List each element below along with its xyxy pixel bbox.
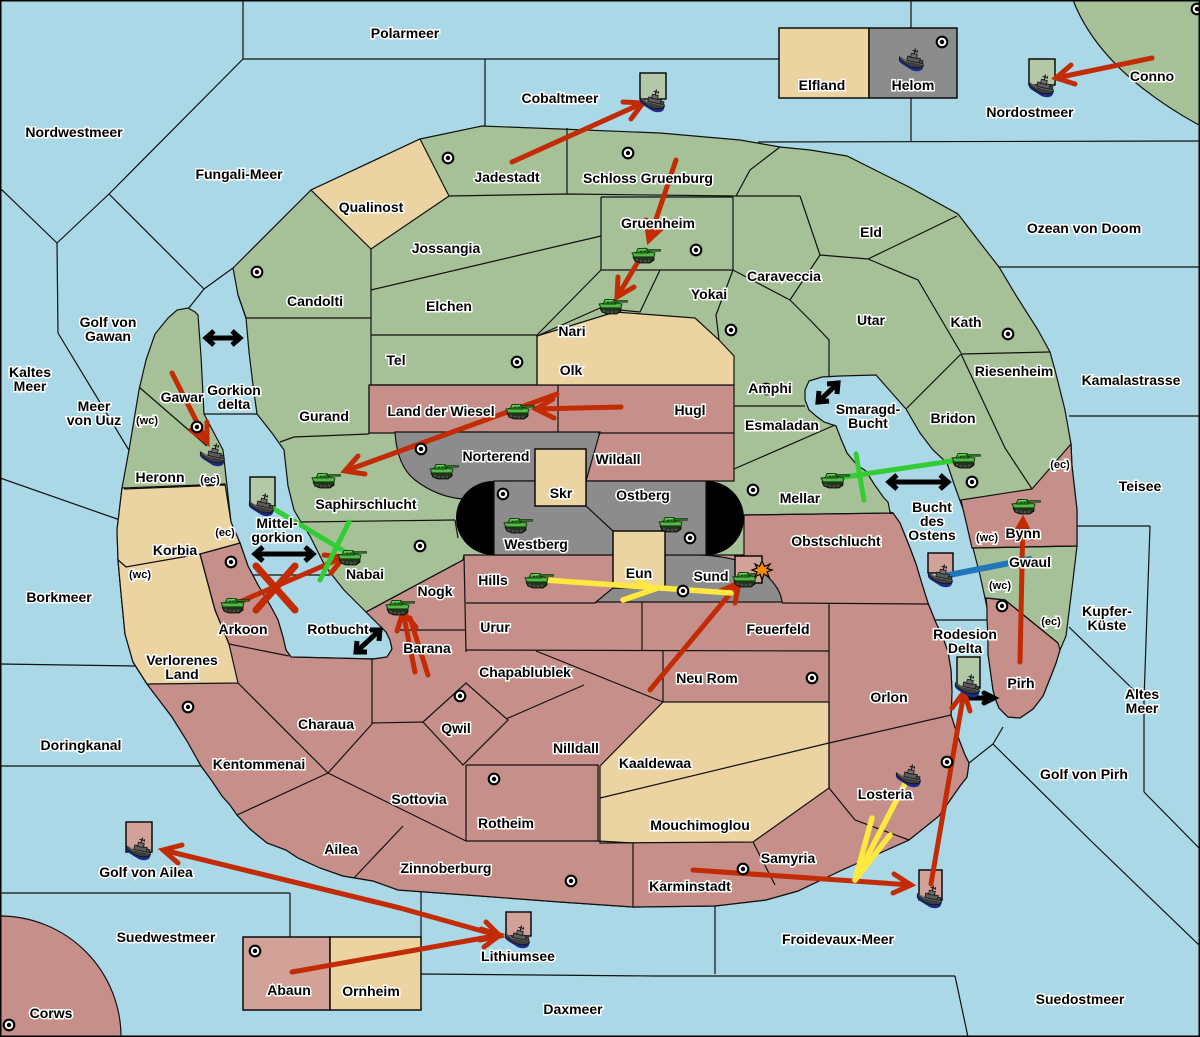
svg-text:Neu Rom: Neu Rom bbox=[676, 670, 737, 686]
svg-text:Conno: Conno bbox=[1130, 68, 1174, 84]
svg-text:Nilldall: Nilldall bbox=[553, 740, 599, 756]
svg-text:Schloss Gruenburg: Schloss Gruenburg bbox=[583, 170, 713, 186]
svg-text:Pirh: Pirh bbox=[1007, 675, 1034, 691]
svg-text:Riesenheim: Riesenheim bbox=[975, 363, 1054, 379]
svg-text:(ec): (ec) bbox=[200, 474, 220, 486]
svg-text:Esmaladan: Esmaladan bbox=[745, 417, 819, 433]
svg-text:Nordwestmeer: Nordwestmeer bbox=[25, 124, 123, 140]
svg-text:Ostens: Ostens bbox=[908, 527, 956, 543]
svg-text:Land der Wiesel: Land der Wiesel bbox=[387, 403, 494, 419]
svg-text:Lithiumsee: Lithiumsee bbox=[481, 948, 555, 964]
svg-text:Land: Land bbox=[165, 666, 198, 682]
svg-text:Charaua: Charaua bbox=[298, 716, 354, 732]
svg-text:Nabai: Nabai bbox=[346, 566, 384, 582]
svg-text:gorkion: gorkion bbox=[251, 529, 302, 545]
svg-text:Yokai: Yokai bbox=[691, 286, 727, 302]
svg-text:von Uuz: von Uuz bbox=[67, 412, 121, 428]
svg-text:Daxmeer: Daxmeer bbox=[543, 1001, 603, 1017]
svg-text:Gwaul: Gwaul bbox=[1009, 554, 1051, 570]
svg-text:Ornheim: Ornheim bbox=[342, 983, 400, 999]
svg-text:Sund: Sund bbox=[694, 568, 729, 584]
svg-text:Karminstadt: Karminstadt bbox=[649, 878, 731, 894]
svg-text:Candolti: Candolti bbox=[287, 293, 343, 309]
svg-text:Gawan: Gawan bbox=[85, 328, 131, 344]
svg-text:Doringkanal: Doringkanal bbox=[41, 737, 122, 753]
svg-text:Losteria: Losteria bbox=[858, 786, 913, 802]
svg-text:(ec): (ec) bbox=[1041, 616, 1061, 628]
svg-text:Suedostmeer: Suedostmeer bbox=[1036, 991, 1125, 1007]
svg-text:Abaun: Abaun bbox=[267, 982, 311, 998]
svg-text:Helom: Helom bbox=[892, 77, 935, 93]
svg-text:(wc): (wc) bbox=[989, 580, 1011, 592]
svg-text:Rotheim: Rotheim bbox=[478, 815, 534, 831]
svg-text:Golf von Ailea: Golf von Ailea bbox=[99, 864, 193, 880]
svg-text:Samyria: Samyria bbox=[761, 850, 816, 866]
svg-text:Korbia: Korbia bbox=[153, 542, 198, 558]
svg-text:Olk: Olk bbox=[560, 362, 583, 378]
svg-text:Bridon: Bridon bbox=[930, 410, 975, 426]
svg-text:Suedwestmeer: Suedwestmeer bbox=[117, 929, 216, 945]
svg-text:(wc): (wc) bbox=[136, 415, 158, 427]
svg-text:Elchen: Elchen bbox=[426, 298, 472, 314]
svg-text:Nordostmeer: Nordostmeer bbox=[986, 104, 1074, 120]
svg-text:Saphirschlucht: Saphirschlucht bbox=[315, 496, 416, 512]
svg-text:Nogk: Nogk bbox=[418, 583, 453, 599]
svg-text:Borkmeer: Borkmeer bbox=[26, 589, 92, 605]
svg-text:Caraveccia: Caraveccia bbox=[747, 268, 821, 284]
svg-text:(wc): (wc) bbox=[129, 569, 151, 581]
svg-text:Kath: Kath bbox=[950, 314, 981, 330]
svg-text:Eun: Eun bbox=[626, 565, 652, 581]
svg-text:Hills: Hills bbox=[478, 572, 508, 588]
svg-text:Ostberg: Ostberg bbox=[616, 487, 670, 503]
svg-text:Barana: Barana bbox=[403, 640, 451, 656]
svg-text:Orlon: Orlon bbox=[870, 689, 907, 705]
svg-text:Jadestadt: Jadestadt bbox=[474, 169, 540, 185]
svg-text:Feuerfeld: Feuerfeld bbox=[746, 621, 809, 637]
svg-text:Utar: Utar bbox=[857, 312, 886, 328]
svg-text:Urur: Urur bbox=[480, 619, 510, 635]
svg-text:Gawar: Gawar bbox=[161, 389, 204, 405]
svg-text:Westberg: Westberg bbox=[504, 536, 568, 552]
svg-text:Skr: Skr bbox=[550, 485, 573, 501]
svg-text:(wc): (wc) bbox=[976, 532, 998, 544]
svg-text:Meer: Meer bbox=[1126, 700, 1159, 716]
svg-text:Norterend: Norterend bbox=[463, 448, 530, 464]
svg-text:Arkoon: Arkoon bbox=[219, 621, 268, 637]
svg-text:Corws: Corws bbox=[30, 1005, 73, 1021]
svg-text:Meer: Meer bbox=[14, 378, 47, 394]
svg-text:Rotbucht: Rotbucht bbox=[307, 621, 369, 637]
svg-text:Mouchimoglou: Mouchimoglou bbox=[650, 817, 750, 833]
svg-text:Cobaltmeer: Cobaltmeer bbox=[521, 90, 599, 106]
svg-text:Heronn: Heronn bbox=[136, 469, 185, 485]
svg-text:Hugl: Hugl bbox=[674, 402, 705, 418]
svg-text:Wildall: Wildall bbox=[596, 451, 641, 467]
svg-text:Teisee: Teisee bbox=[1119, 478, 1162, 494]
svg-text:Zinnoberburg: Zinnoberburg bbox=[401, 860, 492, 876]
svg-text:Eld: Eld bbox=[860, 224, 882, 240]
svg-text:Delta: Delta bbox=[948, 640, 982, 656]
svg-text:Kaaldewaa: Kaaldewaa bbox=[619, 755, 692, 771]
svg-text:Fungali-Meer: Fungali-Meer bbox=[195, 166, 283, 182]
svg-text:Qualinost: Qualinost bbox=[339, 199, 404, 215]
svg-text:Küste: Küste bbox=[1088, 617, 1127, 633]
svg-text:Elfland: Elfland bbox=[799, 77, 846, 93]
svg-text:Jossangia: Jossangia bbox=[412, 240, 481, 256]
svg-text:Bynn: Bynn bbox=[1006, 525, 1041, 541]
svg-text:delta: delta bbox=[218, 396, 251, 412]
svg-text:Gruenheim: Gruenheim bbox=[621, 215, 695, 231]
svg-text:Nari: Nari bbox=[558, 323, 585, 339]
svg-text:Sottovia: Sottovia bbox=[391, 791, 446, 807]
svg-text:Ozean von Doom: Ozean von Doom bbox=[1027, 220, 1141, 236]
svg-text:Kentommenai: Kentommenai bbox=[213, 756, 306, 772]
svg-text:Polarmeer: Polarmeer bbox=[371, 25, 440, 41]
svg-text:Bucht: Bucht bbox=[848, 415, 888, 431]
svg-text:Chapablublek: Chapablublek bbox=[479, 664, 571, 680]
svg-text:Ailea: Ailea bbox=[324, 841, 358, 857]
svg-text:Qwil: Qwil bbox=[441, 720, 471, 736]
svg-text:Kamalastrasse: Kamalastrasse bbox=[1082, 372, 1181, 388]
svg-text:(ec): (ec) bbox=[1050, 459, 1070, 471]
svg-text:Amphi: Amphi bbox=[748, 380, 792, 396]
svg-text:Froidevaux-Meer: Froidevaux-Meer bbox=[782, 931, 895, 947]
svg-text:Gurand: Gurand bbox=[299, 408, 349, 424]
svg-text:Obstschlucht: Obstschlucht bbox=[791, 533, 881, 549]
svg-text:(ec): (ec) bbox=[215, 527, 235, 539]
svg-text:Mellar: Mellar bbox=[780, 490, 821, 506]
svg-text:Tel: Tel bbox=[386, 352, 405, 368]
svg-text:Golf von Pirh: Golf von Pirh bbox=[1040, 766, 1128, 782]
